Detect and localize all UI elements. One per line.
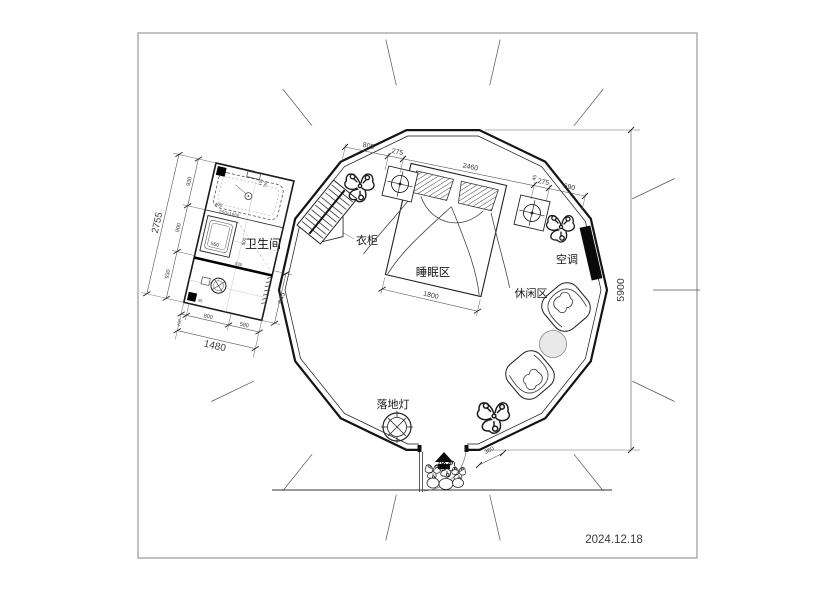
floor-plan-drawing: 400 150 750 550x1600 550 900 930 95 930 … <box>0 0 837 592</box>
round-table <box>540 331 567 358</box>
nightstand-left <box>382 166 418 202</box>
sleeping-area-label: 睡眠区 <box>416 266 451 279</box>
entry-opening <box>419 442 467 453</box>
date-label: 2024.12.18 <box>585 534 643 546</box>
nightstand-right <box>514 195 550 231</box>
bathroom-label: 卫生间 <box>245 237 281 251</box>
ac-label: 空调 <box>556 252 578 266</box>
floor-plan-page: 400 150 750 550x1600 550 900 930 95 930 … <box>0 0 837 592</box>
leisure-area-label: 休闲区 <box>515 286 548 300</box>
dim-overall-height: 5900 <box>615 278 627 302</box>
floor-lamp-label: 落地灯 <box>377 398 410 411</box>
